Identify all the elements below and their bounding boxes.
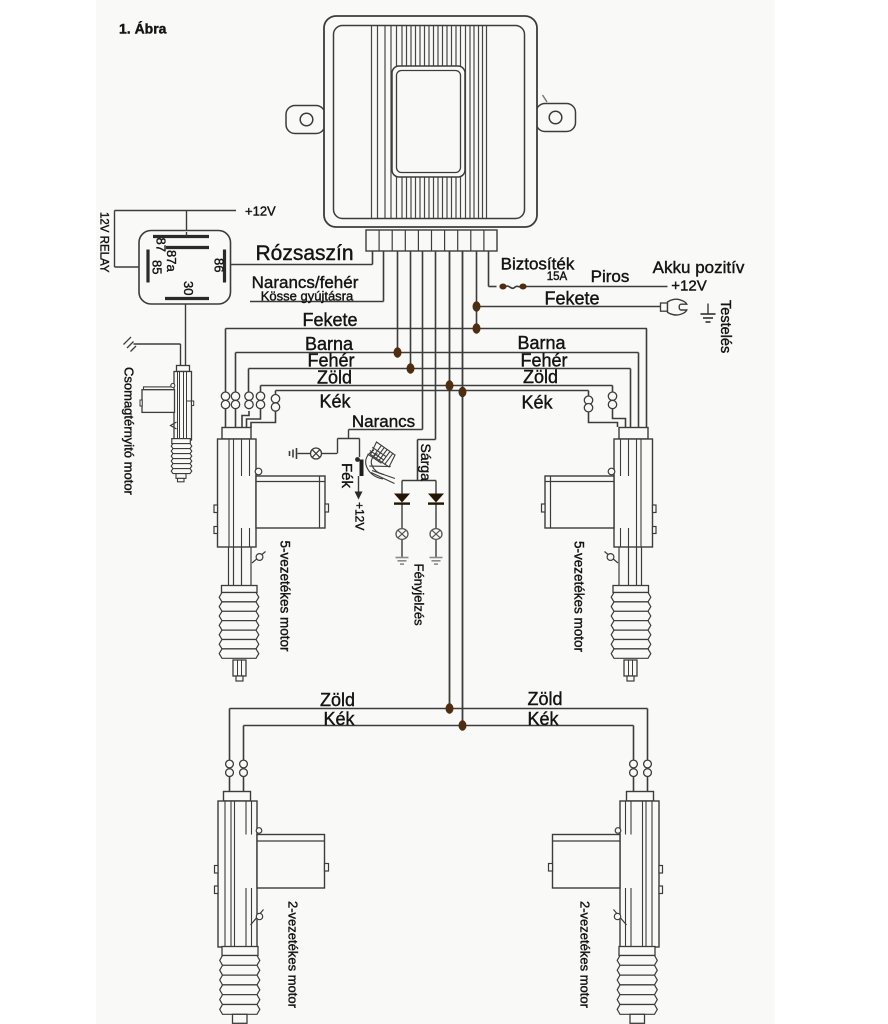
svg-text:Csomagtérnyitó motor: Csomagtérnyitó motor xyxy=(122,367,137,496)
svg-text:15A: 15A xyxy=(547,271,568,283)
svg-text:2-vezetékes motor: 2-vezetékes motor xyxy=(286,901,301,1009)
svg-text:Zöld: Zöld xyxy=(317,368,352,388)
svg-text:Fék: Fék xyxy=(338,463,355,489)
svg-text:2-vezetékes motor: 2-vezetékes motor xyxy=(578,901,593,1009)
svg-text:Fekete: Fekete xyxy=(302,310,357,330)
svg-text:Zöld: Zöld xyxy=(527,689,562,709)
svg-text:Piros: Piros xyxy=(591,267,630,286)
svg-text:Narancs: Narancs xyxy=(352,412,415,431)
svg-text:Testelés: Testelés xyxy=(717,300,733,353)
svg-text:Kék: Kék xyxy=(521,393,553,413)
svg-text:Kösse gyújtásra: Kösse gyújtásra xyxy=(261,289,354,304)
svg-text:86: 86 xyxy=(212,258,227,272)
svg-text:5-vezetékes motor: 5-vezetékes motor xyxy=(278,541,293,653)
svg-text:5-vezetékes motor: 5-vezetékes motor xyxy=(572,541,587,653)
svg-text:85: 85 xyxy=(150,260,165,274)
svg-text:+12V: +12V xyxy=(245,204,276,219)
svg-text:Zöld: Zöld xyxy=(320,690,355,710)
svg-text:+12V: +12V xyxy=(671,278,706,295)
svg-text:Kék: Kék xyxy=(323,709,355,729)
svg-text:Kék: Kék xyxy=(319,392,351,412)
svg-text:Rózsaszín: Rózsaszín xyxy=(255,242,353,265)
svg-text:1. Ábra: 1. Ábra xyxy=(119,21,167,37)
svg-text:Sárga: Sárga xyxy=(418,444,434,482)
svg-text:+12V: +12V xyxy=(353,502,367,530)
svg-text:Akku pozitív: Akku pozitív xyxy=(653,258,745,277)
svg-text:Fekete: Fekete xyxy=(544,289,599,309)
svg-text:Kék: Kék xyxy=(527,709,559,729)
svg-text:87a: 87a xyxy=(164,250,179,272)
svg-text:12V RELAY: 12V RELAY xyxy=(98,212,110,273)
svg-text:Zöld: Zöld xyxy=(523,367,558,387)
svg-text:Fényjelzés: Fényjelzés xyxy=(412,564,427,627)
svg-text:30: 30 xyxy=(181,281,196,295)
